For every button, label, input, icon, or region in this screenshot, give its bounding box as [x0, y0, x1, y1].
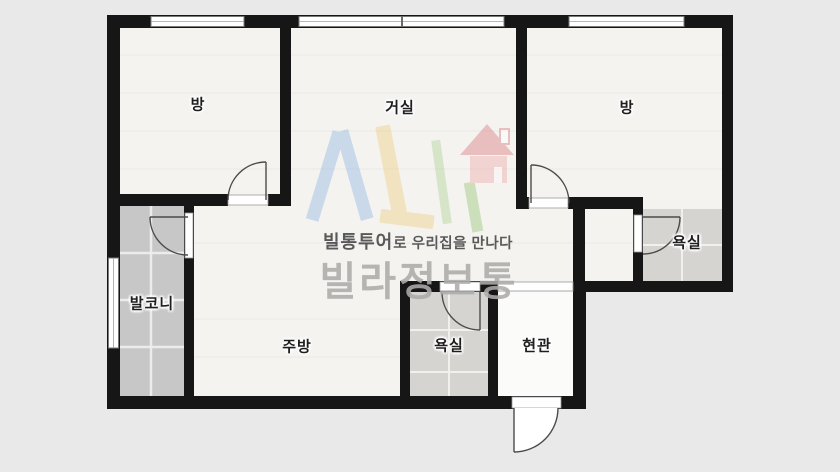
room-label-entrance: 현관 — [522, 335, 552, 356]
room-label-bath-right: 욕실 — [672, 232, 702, 253]
wall-hall-right — [573, 197, 585, 292]
logo-l-stroke-icon — [379, 209, 434, 229]
room-label-living: 거실 — [385, 97, 415, 118]
logo-l-stroke-icon — [375, 124, 408, 219]
wall-right — [722, 15, 733, 292]
wall-entrance-right — [573, 281, 586, 409]
wall-left — [107, 15, 120, 409]
logo-l-stroke-icon — [464, 181, 484, 232]
wall-room-left-bottom-a — [107, 194, 228, 206]
floorplan-image: 빌통투어로 우리집을 만나다 빌라정보통 방 거실 방 욕실 발코니 주방 욕실… — [0, 0, 840, 472]
logo-v-stroke-icon — [336, 129, 374, 221]
room-label-balcony: 발코니 — [130, 293, 174, 314]
opening-balcony — [185, 213, 193, 258]
vl-house-logo-icon — [298, 120, 526, 232]
logo-house-door-icon — [494, 167, 502, 183]
wall-room-left-right — [280, 15, 291, 206]
opening-entrance-door — [512, 397, 561, 408]
opening-bath-right — [634, 215, 642, 252]
watermark-brand: 빌라정보통 — [320, 249, 519, 307]
room-label-bath-bottom: 욕실 — [434, 335, 464, 356]
wall-bath-right-bottom — [573, 281, 733, 292]
opening-room-right — [529, 198, 568, 208]
logo-house-chimney-icon — [499, 128, 510, 145]
logo-i-stroke-icon — [431, 140, 452, 224]
room-label-kitchen: 주방 — [282, 336, 312, 357]
room-label-room-right: 방 — [620, 97, 635, 118]
opening-room-left — [228, 195, 268, 205]
entrance-door-swing-area — [514, 408, 558, 452]
room-label-room-left: 방 — [191, 94, 206, 115]
